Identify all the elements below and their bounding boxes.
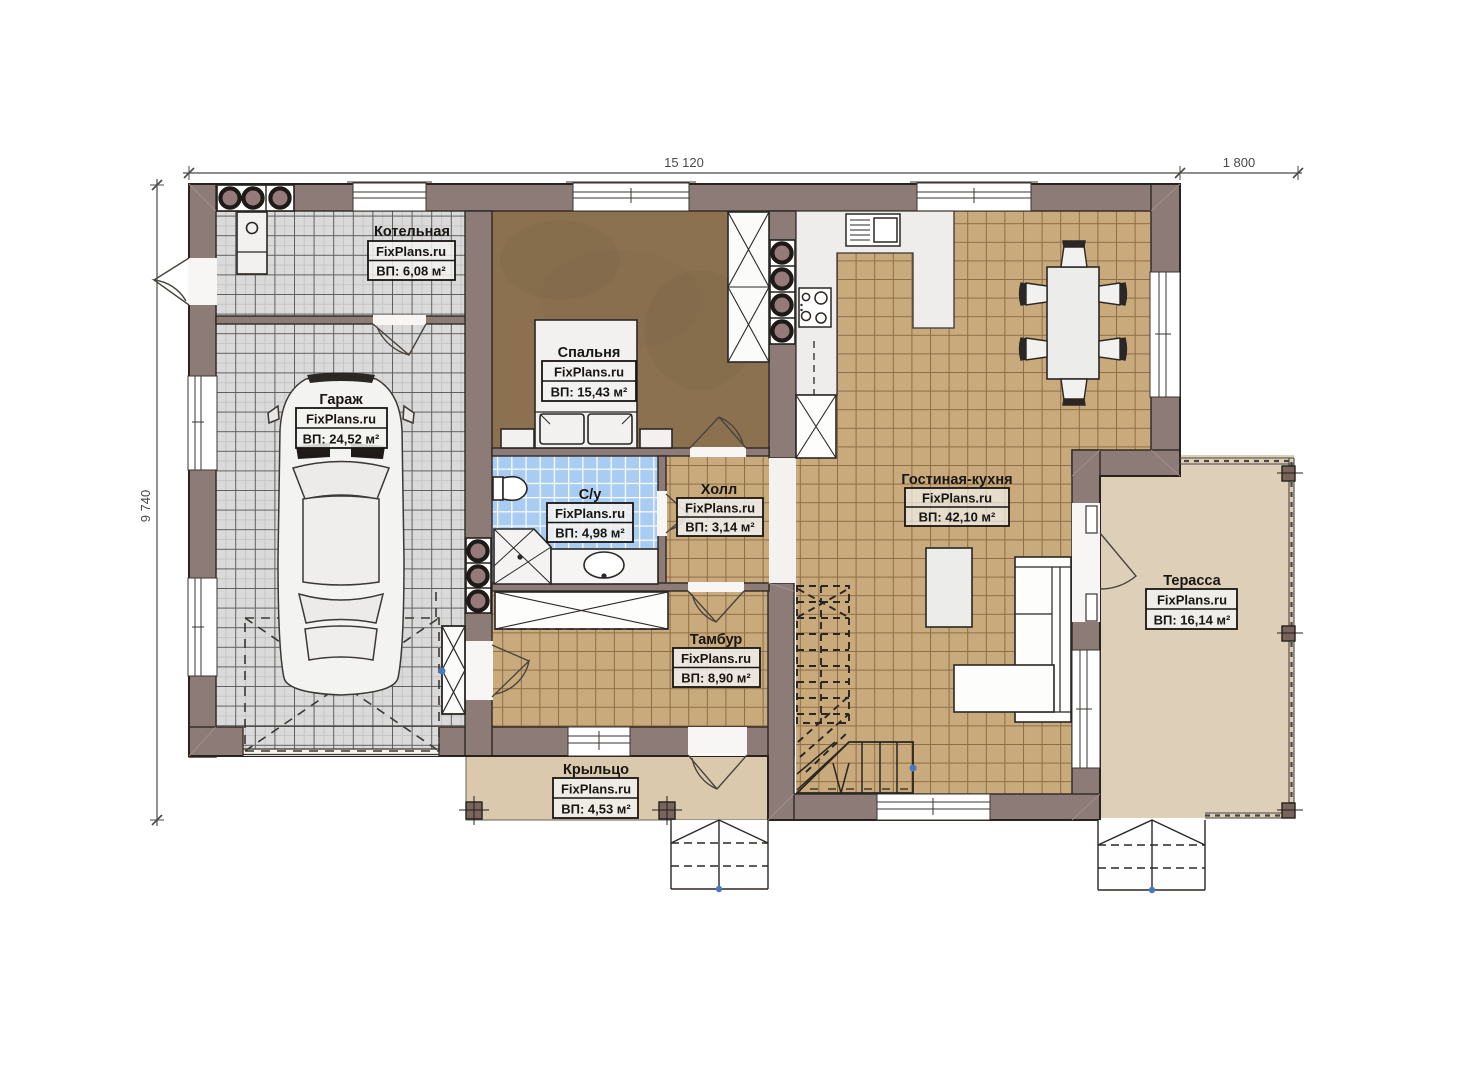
svg-text:1 800: 1 800 [1223, 155, 1256, 170]
svg-text:FixPlans.ru: FixPlans.ru [561, 782, 631, 797]
svg-text:ВП: 4,53 м²: ВП: 4,53 м² [561, 802, 631, 817]
svg-text:FixPlans.ru: FixPlans.ru [555, 506, 625, 521]
svg-text:Гостиная-кухня: Гостиная-кухня [901, 472, 1012, 488]
svg-text:Котельная: Котельная [374, 224, 450, 240]
svg-text:ВП: 3,14 м²: ВП: 3,14 м² [685, 520, 755, 535]
svg-text:9 740: 9 740 [138, 490, 153, 523]
svg-text:FixPlans.ru: FixPlans.ru [685, 501, 755, 516]
svg-text:15 120: 15 120 [664, 155, 704, 170]
svg-text:Крыльцо: Крыльцо [563, 762, 629, 778]
svg-text:FixPlans.ru: FixPlans.ru [922, 491, 992, 506]
svg-text:ВП: 16,14 м²: ВП: 16,14 м² [1154, 613, 1231, 628]
svg-text:FixPlans.ru: FixPlans.ru [306, 412, 376, 427]
svg-text:FixPlans.ru: FixPlans.ru [376, 244, 446, 259]
svg-text:FixPlans.ru: FixPlans.ru [681, 651, 751, 666]
svg-text:ВП: 6,08 м²: ВП: 6,08 м² [376, 264, 446, 279]
svg-text:FixPlans.ru: FixPlans.ru [554, 365, 624, 380]
svg-text:С/у: С/у [579, 487, 602, 503]
svg-text:Терасса: Терасса [1163, 573, 1221, 589]
svg-text:ВП: 15,43 м²: ВП: 15,43 м² [551, 385, 628, 400]
svg-text:ВП: 8,90 м²: ВП: 8,90 м² [681, 671, 751, 686]
svg-text:Гараж: Гараж [319, 392, 363, 408]
svg-text:ВП: 42,10 м²: ВП: 42,10 м² [919, 510, 996, 525]
svg-text:FixPlans.ru: FixPlans.ru [1157, 593, 1227, 608]
svg-text:Спальня: Спальня [558, 345, 621, 361]
svg-text:Тамбур: Тамбур [690, 632, 743, 648]
svg-text:ВП: 24,52 м²: ВП: 24,52 м² [303, 432, 380, 447]
svg-text:ВП: 4,98 м²: ВП: 4,98 м² [555, 526, 625, 541]
svg-text:Холл: Холл [701, 482, 737, 498]
